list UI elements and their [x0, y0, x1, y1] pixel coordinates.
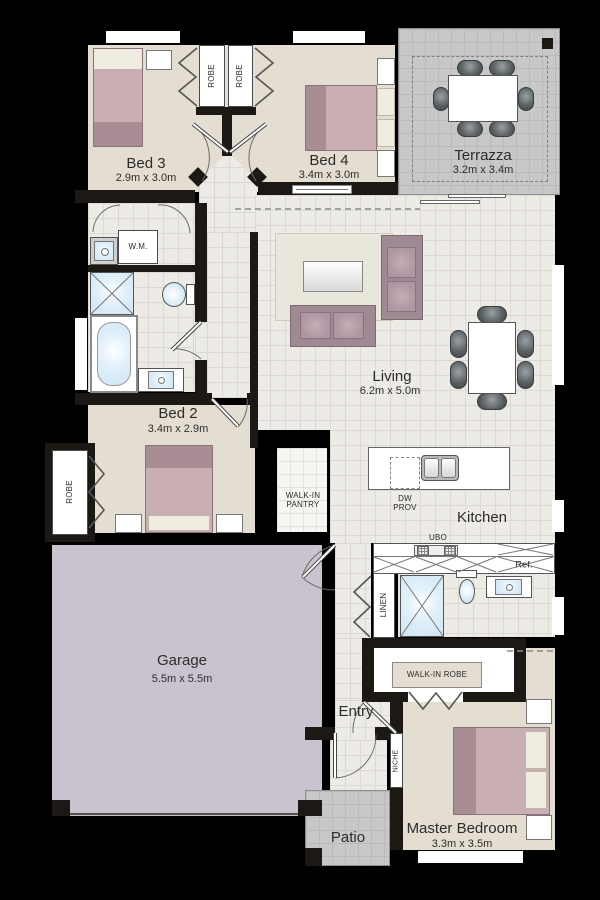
bathtub-basin — [97, 322, 131, 386]
master-side-table-bottom — [526, 815, 552, 840]
window-bed4-internal-line — [296, 189, 348, 190]
living-name: Living — [372, 369, 411, 385]
window-ensuite — [552, 597, 564, 635]
terrazza-name: Terrazza — [454, 148, 512, 164]
bath-shower — [90, 272, 134, 315]
dining-chair-left-1 — [450, 330, 467, 358]
bed2-name: Bed 2 — [158, 406, 197, 422]
wall-bath-right-top — [195, 203, 207, 322]
cooktop-burner-right — [444, 546, 456, 556]
sofa-right-cushion-1 — [387, 247, 416, 278]
master-bed-foot — [454, 728, 476, 814]
wall-bed2-top-right — [247, 393, 258, 405]
bed2-pillow — [148, 515, 210, 531]
sofa-right-cushion-2 — [387, 281, 416, 312]
cooktop-burner-left — [417, 546, 429, 556]
window-bed3 — [106, 31, 180, 43]
floor-master-nook — [526, 648, 555, 702]
bed2-side-table-right — [216, 514, 243, 533]
niche-label: NICHE — [392, 750, 399, 773]
dining-table — [468, 322, 516, 394]
bed4-pillow-1 — [377, 88, 395, 116]
dining-chair-right-2 — [517, 361, 534, 389]
bed4-side-table-bottom — [377, 150, 395, 177]
ref-label: Ref. — [515, 560, 532, 569]
master-name: Master Bedroom — [407, 821, 518, 837]
sofa-bottom-cushion-2 — [333, 312, 364, 339]
terrazza-chair-right — [518, 87, 534, 111]
floor-hall-lower — [207, 232, 255, 398]
ubo-label: UBO — [429, 534, 447, 542]
kitchen-sink-bowl-2 — [441, 458, 456, 478]
bath-vanity-drain — [158, 377, 165, 384]
bed3-foot — [94, 122, 142, 146]
wall-hall-stub — [222, 110, 232, 156]
bed3-name: Bed 3 — [126, 156, 165, 172]
kitchen-bench-divider — [373, 556, 555, 557]
ensuite-shower — [400, 575, 444, 637]
floor-bath-door-gap — [195, 322, 207, 360]
garage-dims: 5.5m x 5.5m — [152, 674, 213, 686]
wall-laundry-bath — [88, 265, 196, 272]
window-bath — [75, 318, 87, 390]
robe-bed3-label: ROBE — [208, 64, 216, 87]
patio-name: Patio — [331, 830, 365, 846]
wm-label: W.M. — [128, 243, 147, 251]
robe-bed2-label: ROBE — [66, 480, 74, 503]
bed2-dims: 3.4m x 2.9m — [148, 424, 209, 436]
bed4-side-table-top — [377, 58, 395, 85]
master-pillow-2 — [525, 771, 547, 809]
master-side-table-top — [526, 699, 552, 724]
wall-niche-bottom — [390, 788, 403, 850]
coffee-table — [303, 261, 363, 292]
wall-garage-stub-right — [298, 800, 322, 816]
ensuite-vanity-drain — [506, 584, 513, 591]
ensuite-toilet-cistern — [456, 570, 477, 578]
bed4-name: Bed 4 — [309, 153, 348, 169]
dw-prov-label: DW PROV — [388, 494, 422, 512]
post-terrazza — [542, 38, 553, 49]
terrazza-chair-bottom-1 — [457, 121, 483, 137]
window-master — [418, 851, 523, 863]
terrazza-chair-top-2 — [489, 60, 515, 76]
bed4-foot — [306, 86, 326, 150]
floor-hall-entry — [335, 543, 371, 638]
wall-hall-living — [250, 232, 258, 448]
walk-in-robe-label: WALK-IN ROBE — [407, 671, 467, 679]
living-dims: 6.2m x 5.0m — [360, 386, 421, 398]
bed4-pillow-2 — [377, 119, 395, 147]
terrazza-dims: 3.2m x 3.4m — [453, 165, 514, 177]
kitchen-sink-bowl-1 — [424, 458, 439, 478]
post-patio — [305, 848, 322, 866]
bed4-dims: 3.4m x 3.0m — [299, 170, 360, 182]
robe-bed4-label: ROBE — [236, 64, 244, 87]
sliding-door-panel-2 — [448, 194, 506, 198]
kitchen-name: Kitchen — [457, 510, 507, 526]
laundry-tub-drain — [101, 248, 109, 256]
wall-entry-door-left — [305, 727, 335, 740]
terrazza-table — [448, 75, 518, 122]
bath-toilet-bowl — [162, 282, 186, 307]
terrazza-chair-left — [433, 87, 449, 111]
dining-chair-bottom — [477, 393, 507, 410]
bed3-side-table — [146, 50, 172, 70]
window-kitchen — [552, 500, 564, 532]
terrazza-chair-top-1 — [457, 60, 483, 76]
floor-entry-door-gap — [335, 727, 375, 740]
wall-niche-top — [390, 700, 403, 733]
bed2-foot — [146, 446, 212, 468]
dining-chair-right-1 — [517, 330, 534, 358]
master-pillow-1 — [525, 731, 547, 769]
garage-door-line — [70, 813, 298, 815]
master-dims: 3.3m x 3.5m — [432, 839, 493, 851]
dining-chair-left-2 — [450, 361, 467, 389]
window-bed4 — [293, 31, 365, 43]
wall-bed3-bottom — [75, 190, 195, 203]
wall-bed2-top-left — [75, 393, 212, 405]
floor-entry — [335, 638, 362, 700]
bath-toilet-cistern — [186, 284, 195, 305]
garage-name: Garage — [157, 653, 207, 669]
bed2-side-table-left — [115, 514, 142, 533]
wall-garage-stub-left — [52, 800, 70, 816]
linen-label: LINEN — [380, 593, 388, 618]
sofa-bottom-cushion-1 — [300, 312, 331, 339]
pantry-label: WALK-IN PANTRY — [274, 491, 332, 509]
dining-chair-top — [477, 306, 507, 323]
wall-bath-right-bottom — [195, 360, 207, 393]
dishwasher-provision — [390, 457, 420, 489]
window-living — [552, 265, 564, 385]
bed3-pillow — [94, 49, 142, 69]
floor-porch — [330, 740, 387, 790]
sliding-door-panel-1 — [420, 200, 480, 204]
terrazza-chair-bottom-2 — [489, 121, 515, 137]
walk-in-robe-door-gap — [408, 692, 463, 702]
floor-plan: ROBE ROBE Bed 3 2.9m x 3.0m Bed 4 3.4m x… — [0, 0, 600, 900]
ensuite-toilet-bowl — [459, 579, 475, 604]
entry-name: Entry — [338, 704, 373, 720]
bed3-dims: 2.9m x 3.0m — [116, 173, 177, 185]
